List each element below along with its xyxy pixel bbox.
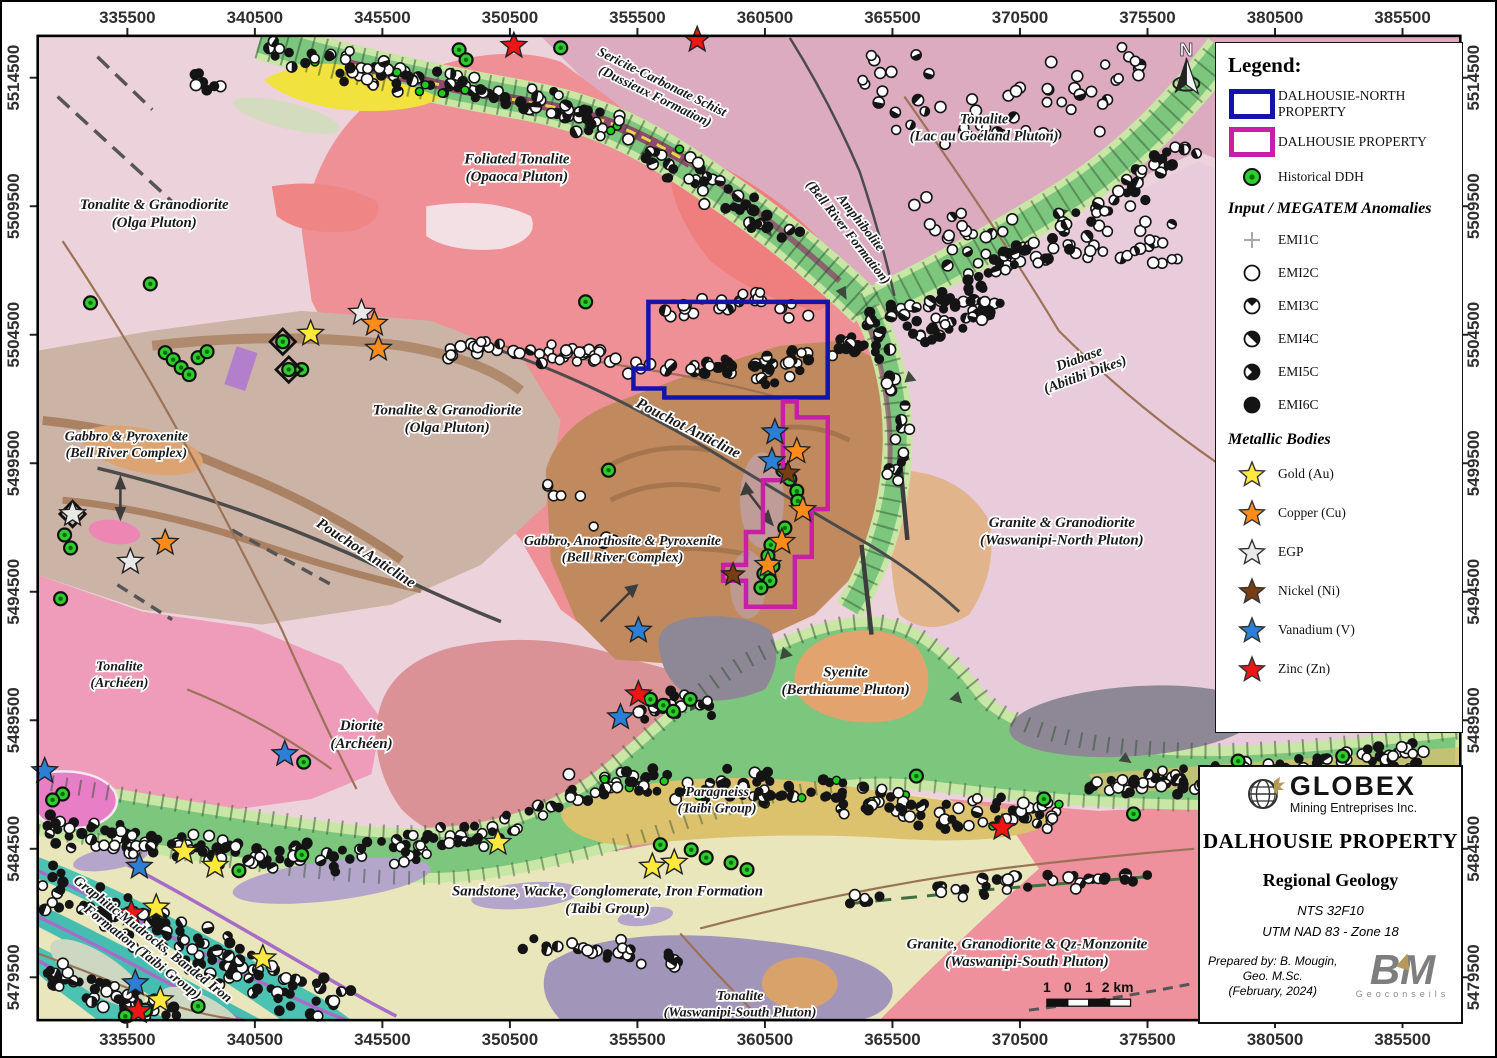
historical-ddh-core — [68, 546, 72, 550]
emi-anomaly-dot — [859, 340, 868, 349]
north-label: N — [1180, 40, 1194, 61]
legend-label: EMI2C — [1278, 265, 1319, 281]
map-label-paragneiss-taibi: Paragneiss(Taibi Group) — [678, 785, 757, 816]
emi-anomaly-dot — [284, 48, 294, 58]
emi-anomaly-dot — [361, 74, 372, 85]
historical-ddh-core — [58, 597, 62, 601]
emi-anomaly-dot — [271, 52, 280, 61]
x-axis-label-bottom: 355500 — [609, 1030, 665, 1049]
ddh-dot-small — [461, 86, 469, 94]
emi-anomaly-dot — [567, 938, 577, 948]
emi-anomaly-dot — [324, 51, 334, 61]
emi-anomaly-dot — [575, 491, 585, 501]
emi-anomaly-dot — [404, 71, 413, 80]
emi-anomaly-dot — [489, 93, 499, 103]
emi-anomaly-dot — [57, 869, 66, 878]
emi-anomaly-dot — [875, 68, 886, 79]
emi-anomaly-dot — [967, 94, 978, 105]
legend-item-emi2c: EMI2C — [1226, 257, 1452, 289]
legend-metal-items: Gold (Au)Copper (Cu)EGPNickel (Ni)Vanadi… — [1226, 455, 1452, 687]
emi-anomaly-dot — [466, 837, 475, 846]
emi-anomaly-dot — [1130, 56, 1140, 66]
map-label-line: Paragneiss — [685, 785, 749, 800]
emi-anomaly-dot — [286, 1001, 295, 1010]
map-label-line: Sandstone, Wacke, Conglomerate, Iron For… — [452, 884, 763, 900]
emi-anomaly-dot — [974, 259, 983, 268]
x-axis-label-top: 370500 — [992, 8, 1048, 27]
historical-ddh-core — [281, 340, 285, 344]
emi-anomaly-dot — [1138, 165, 1147, 174]
emi-anomaly-dot — [1145, 235, 1155, 245]
emi-anomaly-dot — [614, 116, 624, 126]
scale-bar-segment — [1047, 999, 1068, 1006]
emi-anomaly-dot — [777, 232, 787, 242]
map-label-line: (Opaoca Pluton) — [466, 169, 569, 185]
legend-label: DALHOUSIE PROPERTY — [1278, 134, 1427, 150]
emi-anomaly-dot — [734, 204, 743, 213]
map-label-line: (Olga Pluton) — [112, 215, 197, 231]
swatch-cell — [1226, 260, 1278, 286]
emi-anomaly-dot — [858, 76, 867, 85]
emi-anomaly-dot — [669, 691, 679, 701]
y-axis-label-left: 5489500 — [4, 687, 23, 753]
legend-label: Gold (Au) — [1278, 466, 1334, 482]
historical-ddh-core — [205, 349, 209, 353]
x-axis-label-bottom: 350500 — [482, 1030, 538, 1049]
ddh-dot-small — [676, 145, 684, 153]
emi-anomaly-dot — [1130, 778, 1140, 788]
emi-anomaly-dot — [252, 984, 263, 995]
emi-anomaly-dot — [48, 860, 58, 870]
emi-anomaly-dot — [87, 974, 97, 984]
emi-anomaly-dot — [573, 357, 582, 366]
emi-anomaly-dot — [554, 91, 563, 100]
historical-ddh-core — [796, 499, 800, 503]
scale-bar-label: 1 — [1085, 979, 1093, 995]
emi-anomaly-dot — [785, 372, 795, 382]
y-axis-label-left: 5504500 — [4, 302, 23, 368]
scale-bar-segment — [1089, 999, 1110, 1006]
emi-anomaly-dot — [310, 54, 319, 63]
emi-anomaly-dot — [500, 98, 511, 109]
emi-anomaly-dot — [47, 872, 57, 882]
emi-anomaly-dot — [590, 354, 601, 365]
emi-anomaly-dot — [38, 881, 47, 890]
emi-anomaly-dot — [211, 842, 222, 853]
historical-ddh-core — [688, 697, 692, 701]
emi-anomaly-dot — [1010, 260, 1019, 269]
prepared-line-2: Geo. M.Sc. — [1208, 969, 1337, 984]
emi-anomaly-dot — [1002, 885, 1011, 894]
historical-ddh-core — [123, 1014, 127, 1018]
emi-anomaly-dot — [964, 821, 974, 831]
emi-anomaly-dot — [884, 802, 894, 812]
emi-anomaly-dot — [127, 831, 137, 841]
legend-label: EMI4C — [1278, 331, 1319, 347]
emi-anomaly-dot — [1179, 764, 1188, 773]
historical-ddh-core — [62, 533, 66, 537]
emi-anomaly-dot — [767, 791, 776, 800]
emi-anomaly-dot — [892, 125, 901, 134]
emi-anomaly-dot — [1048, 814, 1058, 824]
legend-heading: Legend: — [1228, 53, 1452, 78]
emi-anomaly-dot — [770, 378, 779, 387]
emi-anomaly-dot — [1057, 97, 1066, 106]
emi-anomaly-dot — [845, 898, 855, 908]
map-label-line: (Berthiaume Pluton) — [782, 682, 910, 698]
emi-anomaly-dot — [1117, 775, 1127, 785]
emi-anomaly-dot — [722, 368, 732, 378]
emi-anomaly-dot — [882, 469, 892, 479]
legend-label: EMI3C — [1278, 298, 1319, 314]
emi-anomaly-dot — [65, 900, 74, 909]
emi-circle-icon — [1245, 266, 1260, 281]
emi-anomaly-dot — [1179, 777, 1188, 786]
emi-anomaly-dot — [86, 823, 96, 833]
historical-ddh-core — [606, 468, 610, 472]
swatch-cell — [1226, 227, 1278, 253]
y-axis-label-right: 5479500 — [1464, 944, 1483, 1010]
emi-anomaly-dot — [795, 227, 806, 238]
emi-anomaly-dot — [700, 369, 710, 379]
historical-ddh-core — [768, 579, 772, 583]
emi-anomaly-dot — [647, 763, 658, 774]
y-axis-label-right: 5509500 — [1464, 173, 1483, 239]
y-axis-label-right: 5499500 — [1464, 430, 1483, 496]
ddh-dot-small — [607, 127, 615, 135]
x-axis-label-bottom: 370500 — [992, 1030, 1048, 1049]
emi-anomaly-dot — [1140, 216, 1151, 227]
emi-anomaly-dot — [335, 69, 344, 78]
emi-anomaly-dot — [763, 221, 773, 231]
historical-ddh-core — [457, 48, 461, 52]
historical-ddh-core — [559, 46, 563, 50]
legend-item-emi1c: EMI1C — [1226, 224, 1452, 256]
emi-anomaly-dot — [723, 184, 732, 193]
x-axis-label-bottom: 340500 — [227, 1030, 283, 1049]
scale-bar-segment — [1110, 999, 1131, 1006]
title-block: GLOBEX Mining Entreprises Inc. DALHOUSIE… — [1198, 765, 1463, 1024]
emi-anomaly-dot — [684, 174, 694, 184]
emi-anomaly-dot — [101, 986, 112, 997]
emi-anomaly-dot — [998, 227, 1008, 237]
emi-anomaly-dot — [998, 247, 1008, 257]
emi-anomaly-dot — [964, 287, 973, 296]
emi-anomaly-dot — [623, 134, 634, 145]
historical-ddh-core — [745, 868, 749, 872]
emi-anomaly-dot — [957, 221, 967, 231]
zinc-star-icon — [1240, 657, 1265, 681]
map-label-line: Syenite — [823, 664, 868, 680]
emi-anomaly-dot — [973, 794, 982, 803]
legend-panel: Legend: DALHOUSIE-NORTH PROPERTYDALHOUSI… — [1215, 42, 1463, 733]
dalhousie-property-swatch — [1229, 127, 1275, 157]
emi-anomaly-dot — [881, 378, 892, 389]
emi-anomaly-dot — [274, 846, 284, 856]
x-axis-label-top: 375500 — [1119, 8, 1175, 27]
emi-anomaly-dot — [408, 831, 418, 841]
historical-ddh-core — [671, 709, 675, 713]
emi-anomaly-dot — [877, 86, 888, 97]
historical-ddh-core — [661, 703, 665, 707]
historical-ddh-core — [171, 357, 175, 361]
legend-label: Nickel (Ni) — [1278, 583, 1340, 599]
emi-anomaly-dot — [146, 831, 157, 842]
emi-anomaly-dot — [377, 837, 386, 846]
legend-swatch-icon — [1236, 653, 1268, 685]
historical-ddh-core — [196, 355, 200, 359]
emi-anomaly-dot — [194, 68, 204, 78]
emi-anomaly-dot — [754, 787, 763, 796]
legend-swatch-icon — [1236, 575, 1268, 607]
map-label-line: Granite, Granodiorite & Qz-Monzonite — [907, 936, 1148, 952]
emi-anomaly-dot — [546, 108, 556, 118]
y-axis-label-left: 5494500 — [4, 559, 23, 625]
emi-anomaly-dot — [921, 192, 932, 203]
swatch-cell — [1226, 458, 1278, 490]
emi-anomaly-dot — [603, 949, 613, 959]
emi-anomaly-dot — [554, 803, 564, 813]
emi-anomaly-dot — [727, 360, 736, 369]
emi-anomaly-dot — [1042, 84, 1052, 94]
emi-anomaly-dot — [898, 448, 908, 458]
legend-label: Copper (Cu) — [1278, 505, 1346, 521]
y-axis-label-left: 5479500 — [4, 944, 23, 1010]
emi-anomaly-dot — [693, 157, 704, 168]
historical-ddh-core — [163, 350, 167, 354]
map-label-line: (Waswanipi-North Pluton) — [980, 533, 1144, 549]
legend-item-gold: Gold (Au) — [1226, 455, 1452, 492]
emi-anomaly-dot — [931, 327, 940, 336]
emi-anomaly-dot — [596, 132, 605, 141]
emi-anomaly-dot — [1011, 240, 1022, 251]
emi-anomaly-dot — [432, 67, 442, 77]
emi-anomaly-dot — [469, 72, 480, 83]
legend-item-copper: Copper (Cu) — [1226, 494, 1452, 531]
emi-anomaly-dot — [909, 199, 920, 210]
emi-anomaly-dot — [859, 782, 869, 792]
legend-item-emi3c: EMI3C — [1226, 290, 1452, 322]
emi-anomaly-dot — [863, 804, 874, 815]
emi-anomaly-dot — [99, 840, 109, 850]
swatch-cell — [1226, 392, 1278, 418]
emi-anomaly-dot — [1142, 870, 1152, 880]
legend-item-emi4c: EMI4C — [1226, 323, 1452, 355]
x-axis-label-bottom: 385500 — [1374, 1030, 1430, 1049]
scale-bar-label: 2 km — [1102, 979, 1134, 995]
emi-anomaly-dot — [1114, 74, 1123, 83]
emi-anomaly-dot — [720, 203, 731, 214]
emi-anomaly-dot — [190, 79, 201, 90]
legend-swatch-icon — [1236, 458, 1268, 490]
legend-item-emi6c: EMI6C — [1226, 389, 1452, 421]
ddh-dot-small — [415, 88, 423, 96]
emi-anomaly-dot — [232, 971, 242, 981]
emi-anomaly-dot — [795, 366, 804, 375]
emi-anomaly-dot — [345, 62, 356, 73]
emi-anomaly-dot — [1071, 208, 1080, 217]
emi-anomaly-dot — [345, 854, 355, 864]
emi-anomaly-dot — [1162, 147, 1171, 156]
emi-anomaly-dot — [913, 820, 923, 830]
emi-anomaly-dot — [1043, 253, 1054, 264]
prepared-by: Prepared by: B. Mougin, Geo. M.Sc. (Febr… — [1208, 954, 1337, 999]
emi-anomaly-dot — [1007, 214, 1018, 225]
emi-anomaly-dot — [996, 793, 1006, 803]
emi-anomaly-dot — [951, 885, 960, 894]
regional-geology-map-sheet: Tonalite & Granodiorite(Olga Pluton)Foli… — [0, 0, 1497, 1058]
emi-anomaly-dot — [1388, 751, 1398, 761]
x-axis-label-top: 340500 — [227, 8, 283, 27]
map-label-line: Granite & Granodiorite — [989, 515, 1135, 531]
x-axis-label-bottom: 345500 — [354, 1030, 410, 1049]
emi-anomaly-dot — [345, 47, 354, 56]
x-axis-label-top: 365500 — [864, 8, 920, 27]
emi-anomaly-dot — [53, 825, 62, 834]
emi-anomaly-dot — [1396, 742, 1406, 752]
emi-anomaly-dot — [1418, 746, 1429, 757]
emi-anomaly-dot — [64, 823, 74, 833]
emi-anomaly-dot — [1063, 872, 1074, 883]
legend-item-historical-ddh: Historical DDH — [1226, 164, 1452, 190]
emi-anomaly-dot — [953, 803, 964, 814]
emi-anomaly-dot — [976, 314, 987, 325]
emi-anomaly-dot — [866, 51, 876, 61]
emi-anomaly-dot — [188, 829, 198, 839]
emi-anomaly-dot — [820, 792, 829, 801]
emi-anomaly-dot — [982, 882, 991, 891]
emi-anomaly-dot — [936, 887, 946, 897]
emi-anomaly-dot — [1140, 195, 1150, 205]
ddh-icon-core — [1249, 174, 1254, 179]
emi-anomaly-dot — [942, 800, 951, 809]
prepared-line-1: Prepared by: B. Mougin, — [1208, 954, 1337, 969]
emi-anomaly-dot — [956, 208, 966, 218]
emi-anomaly-dot — [55, 982, 64, 991]
emi-anomaly-dot — [345, 985, 356, 996]
emi-anomaly-dot — [579, 105, 590, 116]
emi-anomaly-dot — [195, 938, 205, 948]
emi-anomaly-dot — [529, 934, 538, 943]
emi-anomaly-dot — [1172, 789, 1183, 800]
emi-anomaly-dot — [198, 847, 208, 857]
emi-anomaly-dot — [1010, 86, 1021, 97]
historical-ddh-core — [148, 282, 152, 286]
emi-anomaly-dot — [940, 297, 950, 307]
legend-item-dalhousie-north-property: DALHOUSIE-NORTH PROPERTY — [1226, 88, 1452, 120]
legend-swatch-icon — [1239, 326, 1265, 352]
emi-anomaly-dot — [566, 793, 576, 803]
y-axis-label-left: 5499500 — [4, 430, 23, 496]
swatch-cell — [1226, 89, 1278, 119]
x-axis-label-bottom: 375500 — [1119, 1030, 1175, 1049]
emi-anomaly-dot — [893, 788, 903, 798]
emi-anomaly-dot — [886, 66, 897, 77]
emi-anomaly-dot — [518, 944, 528, 954]
emi-anomaly-dot — [525, 807, 534, 816]
egp-star-icon — [1240, 540, 1265, 564]
emi-anomaly-dot — [47, 898, 57, 908]
emi-anomaly-dot — [428, 833, 438, 843]
map-label-line: Tonalite & Granodiorite — [80, 197, 229, 213]
ddh-dot-small — [421, 81, 429, 89]
emi-anomaly-dot — [175, 926, 184, 935]
emi-anomaly-dot — [803, 310, 814, 321]
emi-anomaly-dot — [453, 838, 462, 847]
emi-anomaly-dot — [599, 789, 609, 799]
legend-label: EMI5C — [1278, 364, 1319, 380]
dalhousie-north-property-swatch — [1229, 89, 1275, 119]
emi-anomaly-dot — [747, 223, 757, 233]
legend-label: Historical DDH — [1278, 169, 1364, 185]
x-axis-label-bottom: 365500 — [864, 1030, 920, 1049]
legend-label: DALHOUSIE-NORTH PROPERTY — [1278, 88, 1452, 120]
historical-ddh-core — [464, 58, 468, 62]
emi-anomaly-dot — [209, 81, 219, 91]
map-label-line: Tonalite — [96, 659, 143, 674]
emi-anomaly-dot — [362, 837, 373, 848]
emi-anomaly-dot — [937, 287, 948, 298]
swatch-cell — [1226, 326, 1278, 352]
historical-ddh-core — [795, 489, 799, 493]
swatch-cell — [1226, 293, 1278, 319]
emi-anomaly-dot — [46, 966, 55, 975]
emi-anomaly-dot — [664, 948, 673, 957]
emi-anomaly-dot — [444, 838, 455, 849]
legend-ddh-item: Historical DDH — [1226, 164, 1452, 190]
emi-anomaly-dot — [838, 778, 847, 787]
emi-anomaly-dot — [653, 787, 662, 796]
historical-ddh-core — [88, 301, 92, 305]
emi-anomaly-dot — [699, 199, 710, 210]
emi-anomaly-dot — [589, 522, 598, 531]
emi-anomaly-dot — [328, 996, 339, 1007]
emi-anomaly-dot — [1042, 98, 1051, 107]
emi-anomaly-dot — [1048, 243, 1059, 254]
historical-ddh-core — [914, 774, 918, 778]
map-label-line: Tonalite & Granodiorite — [373, 402, 522, 418]
emi-anomaly-dot — [1150, 152, 1161, 163]
legend-swatch-icon — [1236, 614, 1268, 646]
ddh-dot-small — [601, 775, 609, 783]
y-axis-label-right: 5514500 — [1464, 45, 1483, 111]
historical-ddh-core — [196, 1004, 200, 1008]
emi-anomaly-dot — [893, 476, 903, 486]
emi-anomaly-dot — [543, 480, 552, 489]
emi-anomaly-dot — [479, 842, 488, 851]
ddh-dot-small — [438, 89, 446, 97]
emi-anomaly-dot — [1092, 777, 1102, 787]
historical-ddh-core — [60, 792, 64, 796]
emi-anomaly-dot — [1086, 217, 1096, 227]
y-axis-label-right: 5494500 — [1464, 559, 1483, 625]
emi-anomaly-dot — [502, 811, 511, 820]
emi-anomaly-dot — [785, 784, 794, 793]
emi-anomaly-dot — [390, 859, 399, 868]
scale-bar-label: 1 — [1043, 979, 1051, 995]
emi-anomaly-dot — [1042, 870, 1053, 881]
emi-anomaly-dot — [1047, 233, 1058, 244]
historical-ddh-core — [783, 526, 787, 530]
x-axis-label-top: 345500 — [354, 8, 410, 27]
y-axis-label-left: 5514500 — [4, 45, 23, 111]
map-label-bell-river-west: Gabbro & Pyroxenite(Bell River Complex) — [65, 429, 188, 460]
emi-anomaly-dot — [561, 345, 572, 356]
emi-anomaly-dot — [610, 353, 621, 364]
emi-anomaly-dot — [224, 937, 235, 948]
emi-anomaly-dot — [585, 119, 596, 130]
ddh-dot-small — [798, 794, 806, 802]
